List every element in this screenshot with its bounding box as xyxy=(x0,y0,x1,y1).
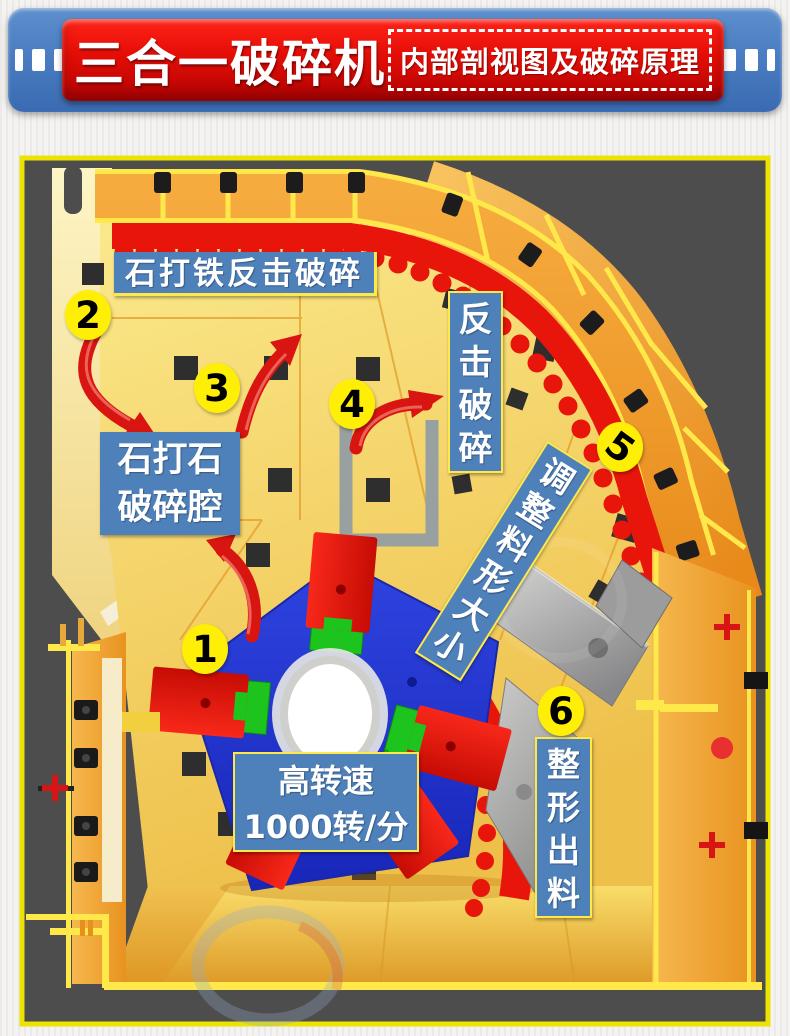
label-line: 破碎腔 xyxy=(100,484,240,532)
step-marker-4: 4 xyxy=(329,379,375,429)
label-impact-crush: 反击破碎 xyxy=(448,291,503,473)
feed-slot xyxy=(64,166,82,214)
label-line: 1000转/分 xyxy=(235,804,417,850)
label-stone-stone-chamber: 石打石 破碎腔 xyxy=(100,432,240,535)
page: 三合一破碎机 内部剖视图及破碎原理 xyxy=(0,0,790,1036)
label-line: 石打石 xyxy=(100,436,240,484)
label-shaping-discharge: 整形出料 xyxy=(535,737,592,918)
label-rotor-speed: 高转速 1000转/分 xyxy=(233,752,419,852)
step-marker-1: 1 xyxy=(182,624,228,674)
label-line: 高转速 xyxy=(235,758,417,804)
step-marker-6: 6 xyxy=(538,686,584,736)
step-marker-2: 2 xyxy=(65,290,111,340)
label-stone-iron-impact: 石打铁反击破碎 xyxy=(114,252,377,296)
step-marker-5: 5 xyxy=(597,422,643,472)
step-marker-3: 3 xyxy=(194,363,240,413)
inspection-dot xyxy=(711,737,733,759)
